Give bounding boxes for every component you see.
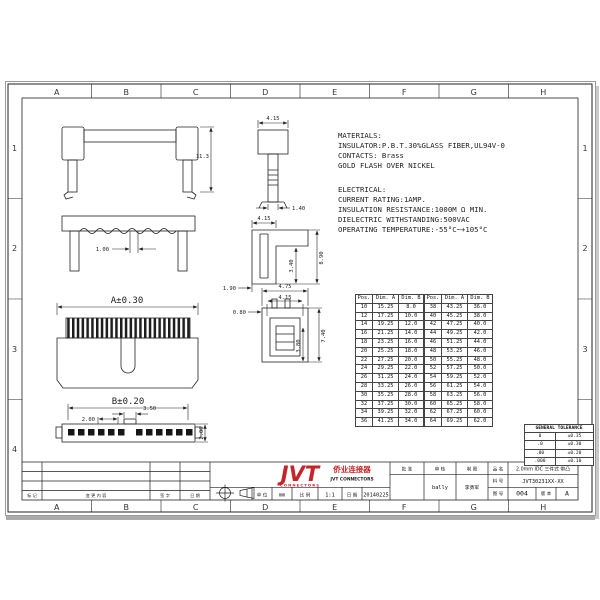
section-contact [258,130,288,208]
table-cell: 64 [425,418,442,427]
dim-sec1-tip: 1.40 [292,206,305,212]
product-value: 2.0mm IDC 三件式 带凸 [516,466,570,473]
unit-value: mm [279,493,285,499]
table-row: 2833.2526.0 [356,382,424,391]
unit-label: 单 位 [257,492,268,499]
dim-cover-slot: 1.00 [96,247,109,253]
table-cell: 32 [356,400,373,409]
table-row: 2025.2518.0 [356,347,424,356]
table-cell: 34 [356,409,373,418]
part-label: 料 号 [493,478,504,485]
grid-letter: F [402,503,407,512]
rev-label: 版 本 [541,490,552,497]
grid-letter: B [123,88,129,97]
table-cell: .0 [525,441,556,449]
table-cell: 41.25 [373,418,399,427]
grid-number: 3 [582,345,587,354]
table-row: 4045.2538.0 [425,312,493,321]
table-cell: 0 [525,433,556,441]
col-header-dim-b: Dim. B [399,295,424,304]
table-cell: 60.0 [468,409,493,418]
table-cell: 14.0 [399,330,424,339]
revision-table: 标 记 变 更 内 容 签 字 日 期 [27,492,200,499]
table-cell: 28.0 [399,391,424,400]
rev-value: A [565,490,569,498]
revision-mark-label: 标 记 [27,492,38,499]
table-cell: 10 [356,303,373,312]
table-cell: 35.25 [373,391,399,400]
table-cell: 42.0 [468,330,493,339]
grid-letter: A [54,503,60,512]
table-cell: 62 [425,409,442,418]
table-cell: 65.25 [442,400,468,409]
grid-letter: G [471,503,477,512]
cover-view [62,216,195,271]
table-row: .0±0.30 [525,441,594,449]
table-cell: 58 [425,391,442,400]
table-row: 5055.2548.0 [425,356,493,365]
table-cell: 67.25 [442,409,468,418]
front-view-dim: 11.3 [196,127,214,192]
electrical-title: ELECTRICAL: [338,185,593,195]
col-header-pos: Pos. [425,295,442,304]
table-row: 3035.2528.0 [356,391,424,400]
cover-view-dim: 1.00 [96,231,156,253]
company-name-en: JVT CONNECTORS [329,477,373,483]
table-row: .000±0.10 [525,457,594,465]
grid-letter: C [193,88,199,97]
dim-sec3-height: 7.40 [321,329,327,342]
table-row: 3843.2536.0 [425,303,493,312]
dim-sec3-wall: 0.80 [233,310,246,316]
table-row: 2631.2524.0 [356,374,424,383]
col-header-dim-a: Dim. A [373,295,399,304]
tolerance-table: GENERAL TOLERANCE 0±0.35.0±0.30.00±0.20.… [524,424,594,466]
jvt-logo-sub: CONNECTORS [280,483,320,488]
dim-b-label: B±0.20 [112,397,145,407]
table-cell: .000 [525,457,556,465]
table-cell: 56 [425,382,442,391]
col-header-dim-a: Dim. A [442,295,468,304]
drawing-canvas: A B C D E F G H A B C D E F G H 1 2 3 4 … [0,0,600,600]
table-cell: 24.0 [399,374,424,383]
table-cell: 61.25 [442,382,468,391]
materials-note: MATERIALS: INSULATOR:P.B.T.30%GLASS FIBE… [338,131,593,171]
table-cell: 58.0 [468,400,493,409]
table-row: 5459.2552.0 [425,374,493,383]
table-cell: 14 [356,321,373,330]
grid-letter: H [540,88,546,97]
table-row: 3237.2530.0 [356,400,424,409]
table-row: 1419.2512.0 [356,321,424,330]
table-cell: 52.0 [468,374,493,383]
table-cell: 34.0 [399,418,424,427]
dim-sec2-foot: 1.90 [223,286,236,292]
table-row: 2227.2520.0 [356,356,424,365]
dimension-table-left: Pos. Dim. A Dim. B 1015.258.01217.2510.0… [355,294,424,427]
grid-letter: D [262,503,268,512]
table-cell: 39.25 [373,409,399,418]
table-cell: 50.0 [468,365,493,374]
part-number-value: JVT30231XX-XX [522,479,564,485]
table-cell: 30 [356,391,373,400]
materials-line: CONTACTS: Brass [338,151,593,161]
tolerance-title: GENERAL TOLERANCE [525,425,594,433]
materials-line: INSULATOR:P.B.T.30%GLASS FIBER,UL94V-0 [338,141,593,151]
table-cell: 55.25 [442,356,468,365]
grid-letter: H [540,503,546,512]
table-cell: 29.25 [373,365,399,374]
table-row: 3439.2532.0 [356,409,424,418]
table-cell: 69.25 [442,418,468,427]
revision-date-label: 日 期 [190,493,200,499]
table-cell: 23.25 [373,338,399,347]
table-cell: 30.0 [399,400,424,409]
notes-block: MATERIALS: INSULATOR:P.B.T.30%GLASS FIBE… [338,131,593,249]
table-cell: ±0.35 [556,433,594,441]
table-header-row: Pos. Dim. A Dim. B [425,295,493,304]
dim-sec3-outer: 4.75 [278,284,291,290]
table-cell: 25.25 [373,347,399,356]
dim-key-width: 3.50 [143,406,156,412]
electrical-note: ELECTRICAL: CURRENT RATING:1AMP. INSULAT… [338,185,593,235]
dim-pitch: 2.00 [82,417,95,423]
table-cell: 18 [356,338,373,347]
table-row: 3641.2534.0 [356,418,424,427]
audit-label: 审 核 [435,466,446,473]
table-cell: 54.0 [468,382,493,391]
table-cell: 31.25 [373,374,399,383]
table-cell: 40.0 [468,321,493,330]
product-label: 品 名 [493,466,503,473]
table-row: 4247.2540.0 [425,321,493,330]
dim-sec2-width: 4.15 [257,216,270,222]
table-cell: 50 [425,356,442,365]
materials-title: MATERIALS: [338,131,593,141]
drawing-no-label: 图 号 [493,491,504,497]
table-cell: 8.0 [399,303,424,312]
table-cell: 20 [356,347,373,356]
table-cell: 44.0 [468,338,493,347]
table-cell: 54 [425,374,442,383]
table-cell: 28 [356,382,373,391]
scale-label: 比 例 [300,492,311,499]
table-cell: 26 [356,374,373,383]
table-cell: ±0.20 [556,449,594,457]
table-cell: 56.0 [468,391,493,400]
table-cell: 16.0 [399,338,424,347]
table-row: 6065.2558.0 [425,400,493,409]
electrical-line: CURRENT RATING:1AMP. [338,195,593,205]
grid-number: 2 [12,244,17,253]
table-cell: 36.0 [468,303,493,312]
grid-number: 3 [12,345,17,354]
section-body [252,230,308,284]
grid-letter: F [402,88,407,97]
table-row: 4449.2542.0 [425,330,493,339]
table-cell: 27.25 [373,356,399,365]
grid-number: 4 [12,445,17,454]
date-label: 日 期 [347,493,358,499]
draw-signature: 李勇军 [465,484,480,491]
grid-letter: A [54,88,60,97]
table-cell: 49.25 [442,330,468,339]
table-cell: 37.25 [373,400,399,409]
table-cell: 53.25 [442,347,468,356]
table-cell: 46 [425,338,442,347]
table-cell: 48.0 [468,356,493,365]
table-cell: 63.25 [442,391,468,400]
table-cell: 43.25 [442,303,468,312]
table-cell: 47.25 [442,321,468,330]
table-row: 0±0.35 [525,433,594,441]
grid-letter: G [471,88,477,97]
dim-sec3-depth: 3.80 [296,339,302,352]
table-cell: 22 [356,356,373,365]
table-cell: 40 [425,312,442,321]
date-value: 20140225 [363,493,389,499]
grid-letter: E [332,503,337,512]
grid-letter: E [332,88,337,97]
approve-label: 批 准 [402,466,413,473]
front-view [62,127,198,199]
grid-letter: D [262,88,268,97]
table-cell: 38.0 [468,312,493,321]
table-cell: 21.25 [373,330,399,339]
table-cell: ±0.10 [556,457,594,465]
table-cell: 22.0 [399,365,424,374]
table-cell: 32.0 [399,409,424,418]
table-row: 5863.2556.0 [425,391,493,400]
grid-letter: B [123,503,129,512]
tolerance-title-row: GENERAL TOLERANCE [525,425,594,433]
table-cell: 12 [356,312,373,321]
electrical-line: DIELECTRIC WITHSTANDING:500VAC [338,215,593,225]
table-row: 5661.2554.0 [425,382,493,391]
dim-sec3-inner: 4.15 [278,295,291,301]
table-row: 4853.2546.0 [425,347,493,356]
table-cell: 26.0 [399,382,424,391]
table-cell: ±0.30 [556,441,594,449]
draw-label: 制 图 [467,466,478,473]
table-row: 1217.2510.0 [356,312,424,321]
dim-front-height: 11.3 [196,154,209,160]
revision-sign-label: 签 字 [160,492,170,498]
table-cell: 46.0 [468,347,493,356]
revision-content-label: 变 更 内 容 [86,492,107,499]
table-cell: 57.25 [442,365,468,374]
dim-a-label: A±0.30 [111,296,144,306]
table-cell: 44 [425,330,442,339]
grid-letter: C [193,503,199,512]
table-cell: 48 [425,347,442,356]
table-cell: 60 [425,400,442,409]
dim-sec2-height: 8.90 [319,251,325,264]
table-row: 6469.2562.0 [425,418,493,427]
table-cell: 59.25 [442,374,468,383]
dim-sec1-width: 4.15 [266,116,279,122]
table-cell: 18.0 [399,347,424,356]
scale-value: 1:1 [325,493,335,499]
top-view-a [57,318,198,388]
table-row: 1621.2514.0 [356,330,424,339]
bottom-view-b [56,419,201,442]
table-cell: 36 [356,418,373,427]
company-name-cn: 侨业连接器 [332,464,371,474]
audit-signature: bally [432,485,448,491]
table-cell: 16 [356,330,373,339]
col-header-pos: Pos. [356,295,373,304]
table-cell: 19.25 [373,321,399,330]
dimension-table-right: Pos. Dim. A Dim. B 3843.2536.04045.2538.… [424,294,493,427]
table-cell: 33.25 [373,382,399,391]
table-cell: 24 [356,365,373,374]
table-header-row: Pos. Dim. A Dim. B [356,295,424,304]
electrical-line: OPERATING TEMPERATURE:-55°C~+105°C [338,225,593,235]
table-row: 6267.2560.0 [425,409,493,418]
table-row: 2429.2522.0 [356,365,424,374]
drawing-no-value: 004 [516,490,528,498]
table-cell: 10.0 [399,312,424,321]
table-row: 1823.2516.0 [356,338,424,347]
table-cell: 38 [425,303,442,312]
table-row: 4651.2544.0 [425,338,493,347]
grid-number: 1 [12,144,17,153]
table-cell: 15.25 [373,303,399,312]
dim-sec2-depth: 3.40 [289,259,295,272]
top-view-a-dim: A±0.30 [57,296,198,315]
table-cell: 45.25 [442,312,468,321]
table-row: 1015.258.0 [356,303,424,312]
table-cell: 20.0 [399,356,424,365]
electrical-line: INSULATION RESISTANCE:1000M Ω MIN. [338,205,593,215]
jvt-logo: JVT CONNECTORS 侨业连接器 JVT CONNECTORS [277,462,374,488]
materials-line: GOLD FLASH OVER NICKEL [338,161,593,171]
table-cell: 42 [425,321,442,330]
table-row: 5257.2550.0 [425,365,493,374]
table-cell: 12.0 [399,321,424,330]
table-cell: 52 [425,365,442,374]
col-header-dim-b: Dim. B [468,295,493,304]
dim-side-height: 2.00 [199,426,205,439]
table-cell: 17.25 [373,312,399,321]
table-cell: 51.25 [442,338,468,347]
table-cell: 62.0 [468,418,493,427]
table-row: .00±0.20 [525,449,594,457]
section-body-dim: 4.15 8.90 3.40 1.90 [223,216,325,292]
table-cell: .00 [525,449,556,457]
